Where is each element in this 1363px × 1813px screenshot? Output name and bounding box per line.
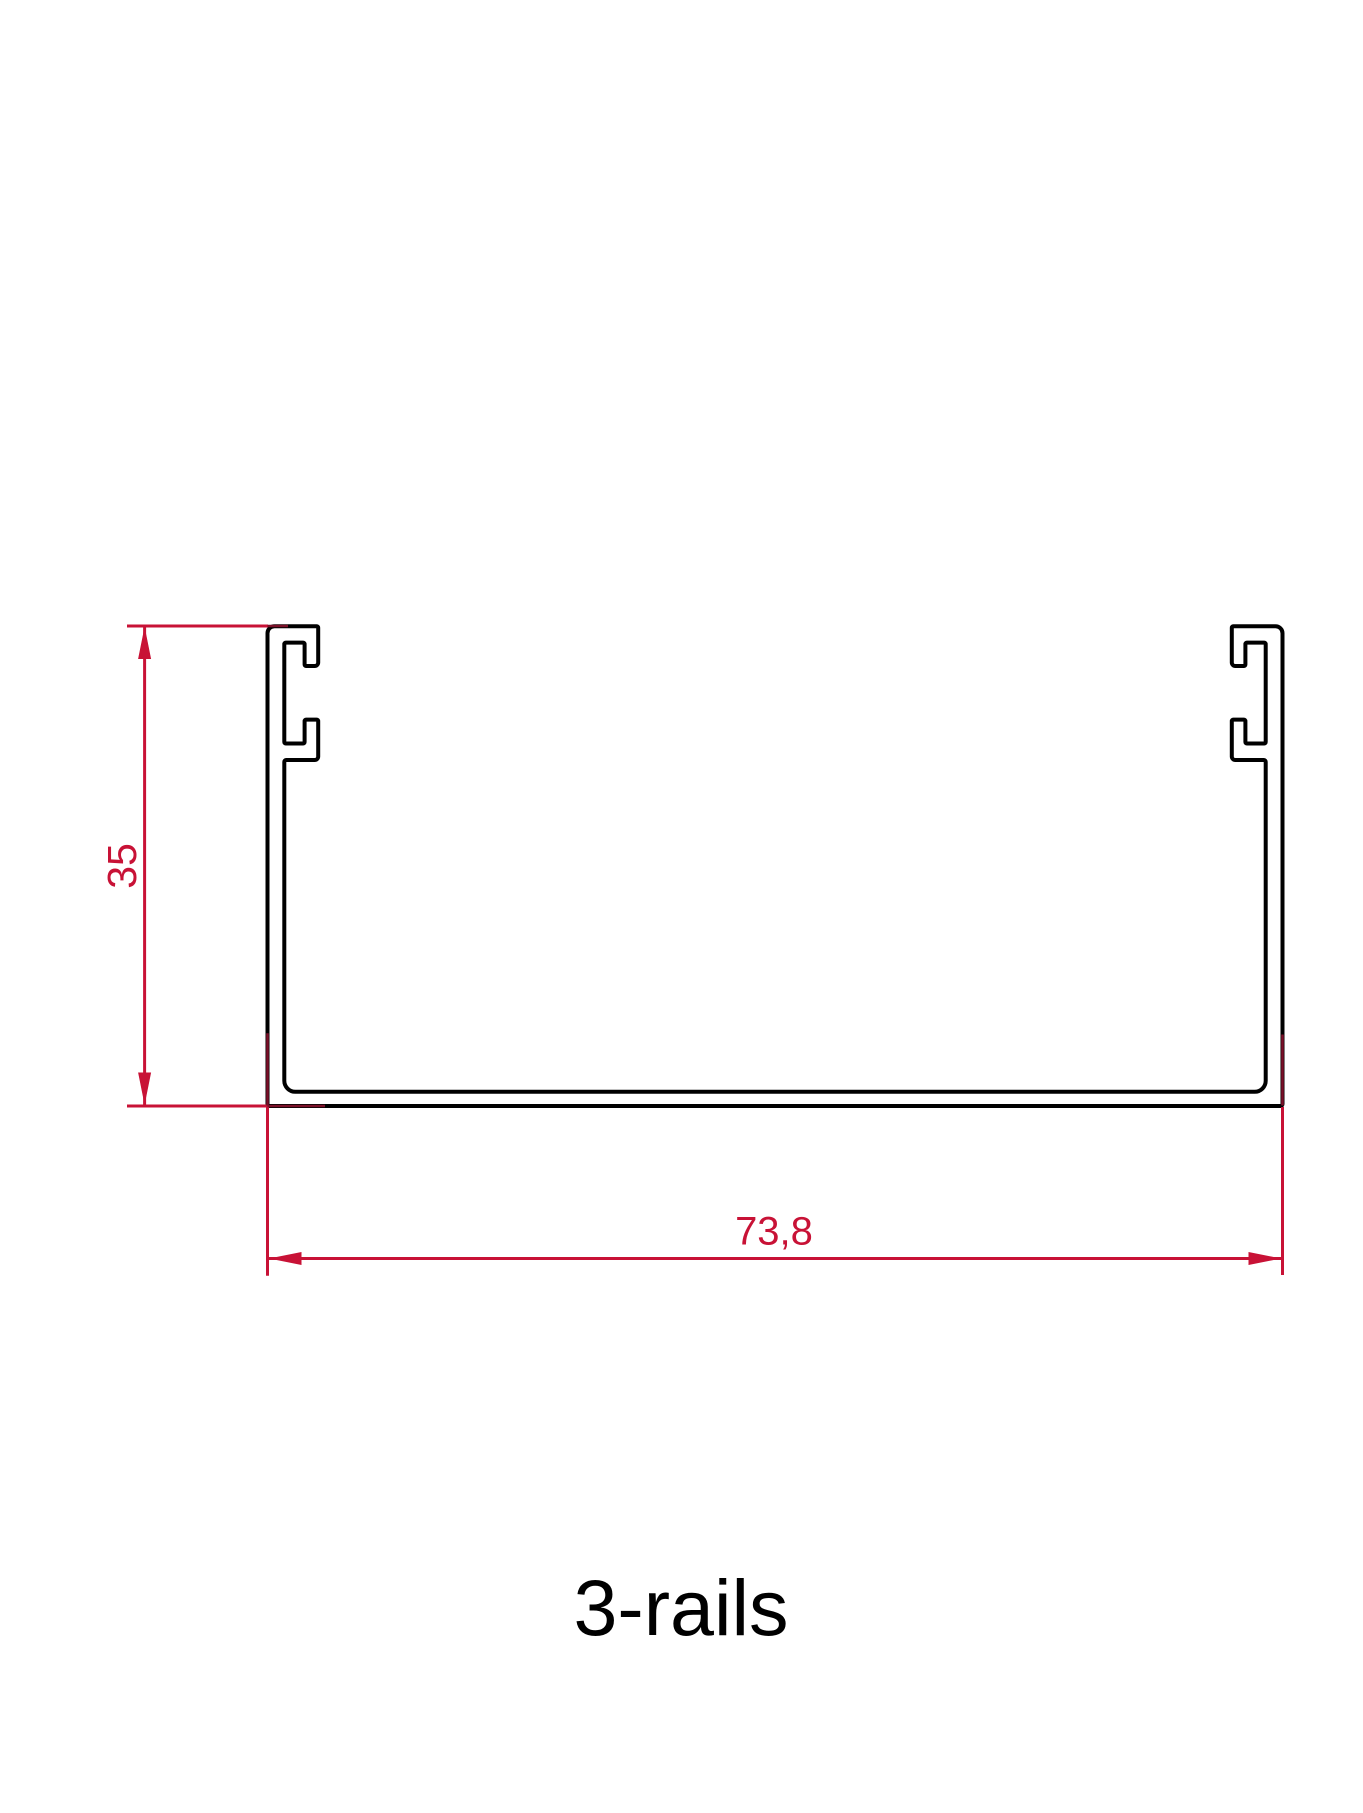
svg-text:73,8: 73,8 (735, 1209, 813, 1253)
svg-text:35: 35 (99, 843, 145, 889)
svg-text:3-rails: 3-rails (573, 1563, 788, 1652)
